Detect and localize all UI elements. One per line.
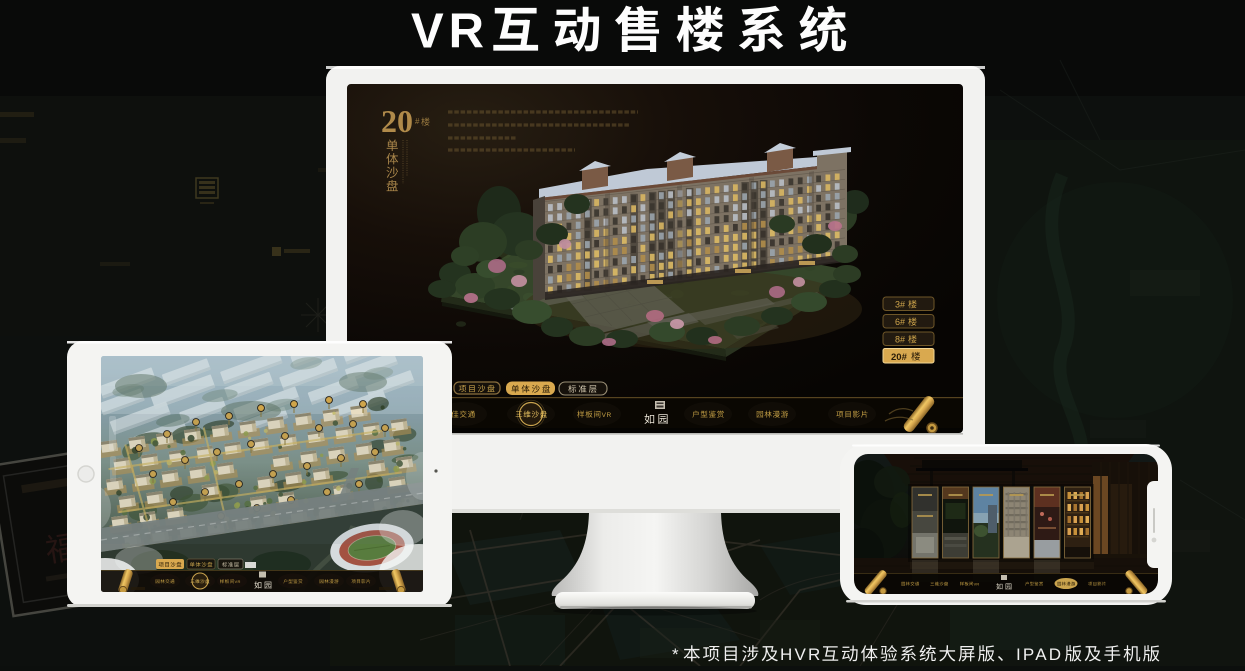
- svg-text:3#: 3#: [895, 300, 905, 310]
- svg-text:VR: VR: [235, 579, 241, 584]
- svg-text:VR: VR: [974, 582, 980, 586]
- svg-text:VR: VR: [602, 412, 612, 419]
- svg-text:VR: VR: [411, 5, 489, 59]
- svg-text:20: 20: [381, 103, 413, 139]
- svg-text:#: #: [415, 117, 420, 126]
- svg-text:IPAD: IPAD: [1016, 645, 1063, 664]
- svg-text:6#: 6#: [895, 317, 905, 327]
- svg-text:20#: 20#: [891, 352, 908, 363]
- svg-text:HVR: HVR: [780, 645, 823, 664]
- svg-text:8#: 8#: [895, 335, 905, 345]
- svg-text:*: *: [672, 645, 679, 664]
